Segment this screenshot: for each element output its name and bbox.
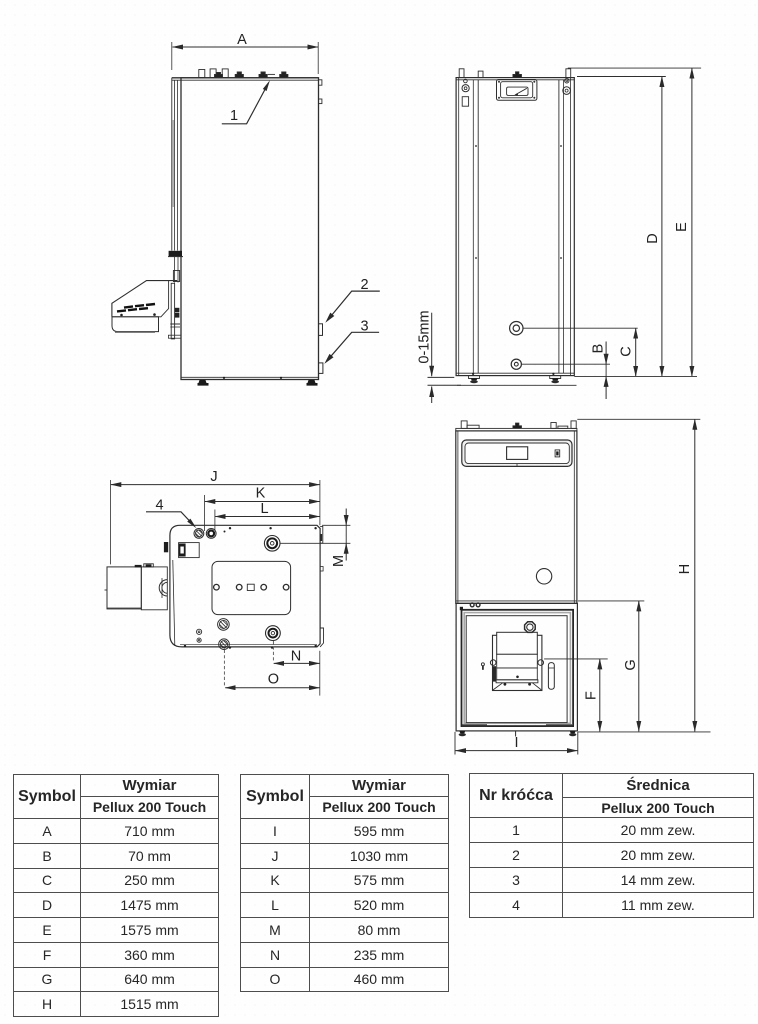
svg-text:1: 1 bbox=[230, 108, 238, 124]
svg-text:4: 4 bbox=[155, 498, 163, 514]
svg-text:H: H bbox=[677, 564, 693, 574]
svg-text:E: E bbox=[674, 222, 690, 232]
svg-text:J: J bbox=[210, 469, 217, 485]
svg-text:A: A bbox=[237, 32, 247, 48]
svg-text:N: N bbox=[291, 648, 301, 664]
svg-text:O: O bbox=[268, 672, 279, 688]
svg-text:F: F bbox=[584, 691, 600, 700]
svg-text:0-15mm: 0-15mm bbox=[417, 310, 433, 363]
svg-text:K: K bbox=[256, 486, 266, 502]
svg-text:C: C bbox=[619, 346, 635, 356]
svg-text:B: B bbox=[591, 344, 607, 354]
svg-text:D: D bbox=[645, 233, 661, 243]
svg-text:G: G bbox=[623, 659, 639, 670]
svg-text:L: L bbox=[260, 501, 268, 517]
svg-text:M: M bbox=[331, 555, 347, 567]
svg-text:I: I bbox=[514, 735, 518, 751]
